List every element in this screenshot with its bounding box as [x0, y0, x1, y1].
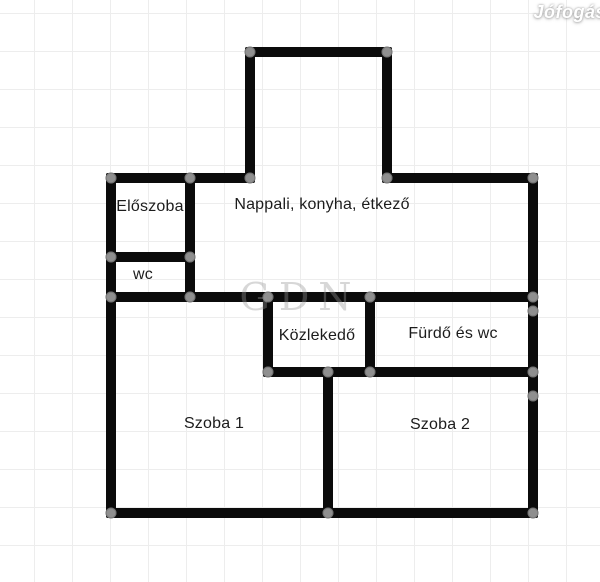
right-outer-wall: [528, 173, 538, 518]
wall-vertex-handle: [185, 173, 196, 184]
wall-vertex-handle: [245, 47, 256, 58]
wall-vertex-handle: [106, 252, 117, 263]
wall-vertex-handle: [528, 306, 539, 317]
room-label-szoba1: Szoba 1: [184, 415, 244, 433]
kozlekedo-right-wall: [365, 292, 375, 377]
wall-vertex-handle: [382, 173, 393, 184]
wall-vertex-handle: [106, 292, 117, 303]
left-outer-wall: [106, 173, 116, 518]
room-label-eloszoba: Előszoba: [116, 198, 183, 216]
site-logo-watermark: Jófogás: [533, 2, 600, 23]
wall-vertex-handle: [185, 292, 196, 303]
eloszoba-wc-divider: [106, 252, 195, 262]
wall-vertex-handle: [528, 508, 539, 519]
floorplan-canvas: ElőszobawcNappali, konyha, étkezőKözleke…: [0, 0, 600, 582]
room-label-furdo: Fürdő és wc: [408, 325, 497, 343]
ghost-agency-watermark: GDN: [239, 275, 360, 319]
wall-vertex-handle: [528, 292, 539, 303]
wall-vertex-handle: [382, 47, 393, 58]
hall-bottom-wall: [263, 367, 538, 377]
eloszoba-right-wall: [185, 173, 195, 302]
bay-right-wall: [382, 47, 392, 183]
top-right-wall: [382, 173, 538, 183]
room-label-nappali: Nappali, konyha, étkező: [234, 196, 409, 214]
wall-vertex-handle: [528, 367, 539, 378]
wall-vertex-handle: [323, 508, 334, 519]
wall-vertex-handle: [263, 367, 274, 378]
wall-vertex-handle: [528, 173, 539, 184]
wall-vertex-handle: [106, 508, 117, 519]
bay-top-wall: [245, 47, 392, 57]
wall-vertex-handle: [365, 292, 376, 303]
szoba-divider-wall: [323, 367, 333, 518]
wall-vertex-handle: [365, 367, 376, 378]
top-left-wall: [106, 173, 255, 183]
bay-left-wall: [245, 47, 255, 183]
wall-vertex-handle: [323, 367, 334, 378]
room-label-kozlekedo: Közlekedő: [279, 327, 356, 345]
wall-vertex-handle: [245, 173, 256, 184]
room-label-szoba2: Szoba 2: [410, 416, 470, 434]
wall-vertex-handle: [106, 173, 117, 184]
wall-vertex-handle: [528, 391, 539, 402]
wall-vertex-handle: [185, 252, 196, 263]
room-label-wc: wc: [133, 266, 153, 284]
